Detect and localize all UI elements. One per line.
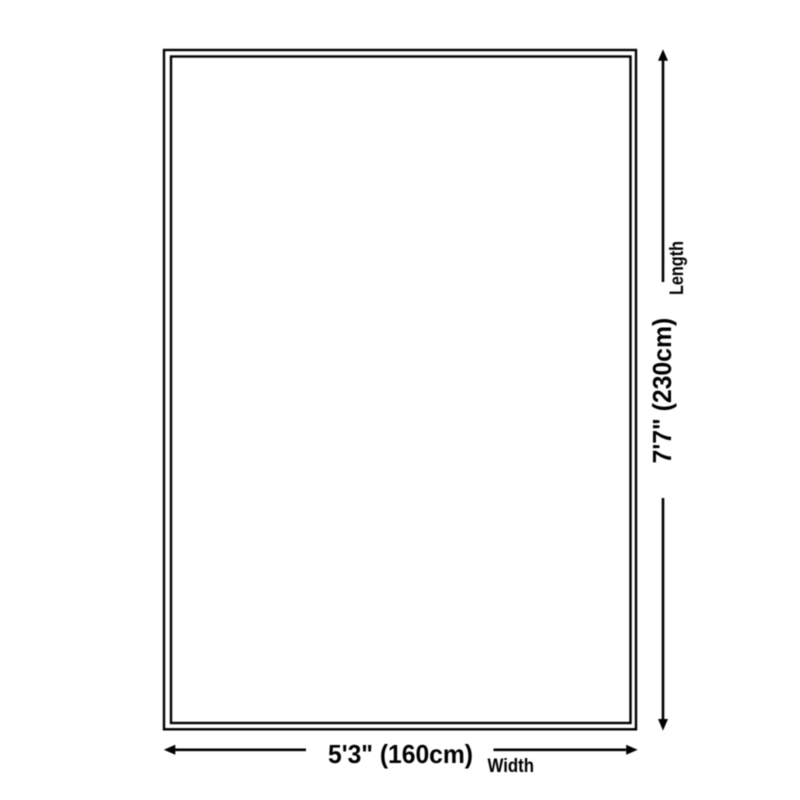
svg-text:7'7" (230cm): 7'7" (230cm) bbox=[647, 318, 677, 464]
svg-text:Width: Width bbox=[488, 755, 535, 777]
svg-text:Length: Length bbox=[666, 241, 688, 295]
svg-text:5'3" (160cm): 5'3" (160cm) bbox=[328, 739, 473, 769]
